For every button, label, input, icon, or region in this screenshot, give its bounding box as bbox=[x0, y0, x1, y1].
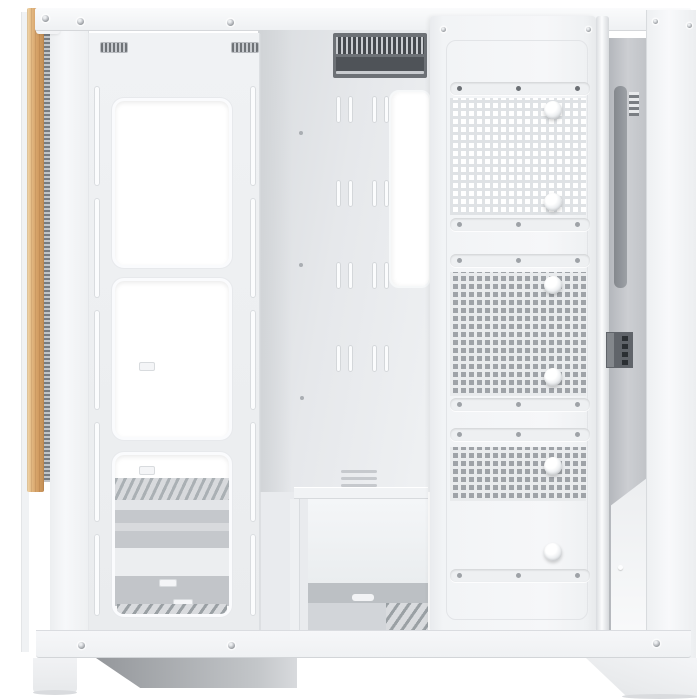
cable-tie-slot bbox=[372, 262, 389, 292]
rail-slot bbox=[94, 534, 100, 616]
screw bbox=[42, 15, 49, 22]
psu-shroud-support bbox=[290, 499, 300, 635]
screw bbox=[653, 640, 660, 647]
fan-slot-bar bbox=[450, 398, 590, 411]
rail-slot bbox=[94, 310, 100, 410]
screw bbox=[228, 642, 235, 649]
cable-tie-slot bbox=[372, 180, 389, 210]
fan-cutout-bottom bbox=[112, 452, 232, 617]
screw bbox=[575, 432, 580, 437]
screw bbox=[77, 18, 84, 25]
connector-pin bbox=[622, 336, 628, 341]
standoff-hole bbox=[299, 263, 303, 267]
screw bbox=[575, 258, 580, 263]
bottom-rail bbox=[36, 630, 691, 658]
rail-slot bbox=[250, 534, 256, 616]
perforation-grid-top bbox=[450, 98, 586, 215]
screw bbox=[457, 432, 462, 437]
standoff-hole bbox=[299, 131, 303, 135]
rail-slot bbox=[94, 422, 100, 522]
cable-tie-slot bbox=[336, 262, 353, 292]
fan-cutout-middle bbox=[112, 278, 232, 440]
rail-slot bbox=[250, 310, 256, 410]
connector-pin bbox=[622, 360, 628, 365]
screw bbox=[653, 19, 658, 24]
foot-shadow-left bbox=[33, 690, 77, 695]
fan-cutout-top bbox=[112, 98, 232, 268]
fan-hub-hole bbox=[544, 276, 562, 294]
fan-hub-hole bbox=[544, 368, 562, 386]
wood-accent-strip bbox=[27, 8, 44, 492]
screw bbox=[575, 86, 580, 91]
rail-slot bbox=[250, 198, 256, 298]
screw bbox=[516, 432, 521, 437]
fan-slot-bar bbox=[450, 569, 590, 582]
fan-hub-hole bbox=[544, 543, 562, 561]
interior-light-line bbox=[115, 523, 229, 531]
perforation-grid-bottom bbox=[450, 447, 586, 501]
connector-pin bbox=[622, 352, 628, 357]
screw bbox=[575, 222, 580, 227]
vent-slats bbox=[336, 37, 424, 54]
screw bbox=[457, 258, 462, 263]
tray-vent-slat bbox=[341, 477, 377, 480]
screw bbox=[687, 23, 692, 28]
connector-pin bbox=[622, 344, 628, 349]
screw bbox=[457, 86, 462, 91]
floor-grille bbox=[117, 604, 227, 616]
tray-left-shade bbox=[258, 30, 292, 492]
cable-clip bbox=[139, 466, 155, 475]
product-photo-pc-case bbox=[0, 0, 700, 700]
screw bbox=[575, 402, 580, 407]
fan-slot-bar bbox=[450, 254, 590, 267]
psu-front-panel bbox=[308, 499, 428, 583]
rail-slot bbox=[250, 422, 256, 522]
screw bbox=[78, 642, 85, 649]
floor-tab bbox=[159, 579, 177, 587]
screw bbox=[586, 27, 591, 32]
rear-panel-band bbox=[646, 10, 696, 658]
rail-slot bbox=[250, 86, 256, 186]
screw bbox=[516, 573, 521, 578]
bottom-intake-grille bbox=[386, 603, 428, 633]
case-foot-left bbox=[33, 658, 77, 692]
chamber-vent-slots bbox=[629, 92, 639, 116]
chamber-bracket bbox=[614, 86, 627, 288]
bracket-vent-slot bbox=[100, 42, 128, 53]
fan-slot-bar bbox=[450, 428, 590, 441]
screw-hole bbox=[618, 565, 623, 570]
fan-hub-hole bbox=[544, 193, 562, 211]
io-connector-block bbox=[606, 332, 633, 368]
connector-face bbox=[607, 333, 614, 367]
cpu-cooler-cutout bbox=[389, 90, 431, 288]
screw bbox=[457, 402, 462, 407]
vent-bottom-lip bbox=[336, 71, 424, 74]
cable-tie-slot bbox=[336, 345, 353, 375]
fan-hub-hole bbox=[544, 101, 562, 119]
perforation-grid-middle bbox=[450, 272, 586, 396]
vent-dark-block bbox=[336, 57, 424, 71]
interior-ledge bbox=[115, 500, 229, 510]
screw bbox=[516, 222, 521, 227]
under-case-shadow bbox=[96, 658, 297, 688]
cable-tie-slot bbox=[336, 96, 353, 126]
cover-right-ridge bbox=[596, 16, 609, 633]
screw bbox=[575, 573, 580, 578]
bracket-vent-slot bbox=[231, 42, 259, 53]
psu-base-tab bbox=[352, 594, 374, 601]
tray-vent-slat bbox=[341, 470, 377, 473]
fan-hub-hole bbox=[544, 457, 562, 475]
cable-tie-slot bbox=[336, 180, 353, 210]
standoff-hole bbox=[300, 396, 304, 400]
screw bbox=[227, 19, 234, 26]
foot-shadow-right bbox=[622, 694, 697, 699]
fan-slot-bar bbox=[450, 218, 590, 231]
screw bbox=[457, 222, 462, 227]
case-foot-right bbox=[586, 658, 697, 698]
rail-slot bbox=[94, 198, 100, 298]
screw bbox=[516, 258, 521, 263]
cable-tie-slot bbox=[372, 345, 389, 375]
cable-tie-slot bbox=[372, 96, 389, 126]
psu-shroud-top-bar bbox=[294, 487, 428, 499]
fan-slot-bar bbox=[450, 82, 590, 95]
tray-lower-panel bbox=[258, 492, 308, 638]
cable-clip bbox=[139, 362, 155, 371]
rail-slot bbox=[94, 86, 100, 186]
screw bbox=[516, 86, 521, 91]
shroud-edge-hatch bbox=[115, 478, 229, 500]
screw bbox=[441, 27, 446, 32]
bracket-divider bbox=[260, 34, 261, 640]
screw bbox=[457, 573, 462, 578]
screw bbox=[516, 402, 521, 407]
interior-floor-light bbox=[115, 548, 229, 576]
front-frame-band bbox=[50, 10, 89, 655]
